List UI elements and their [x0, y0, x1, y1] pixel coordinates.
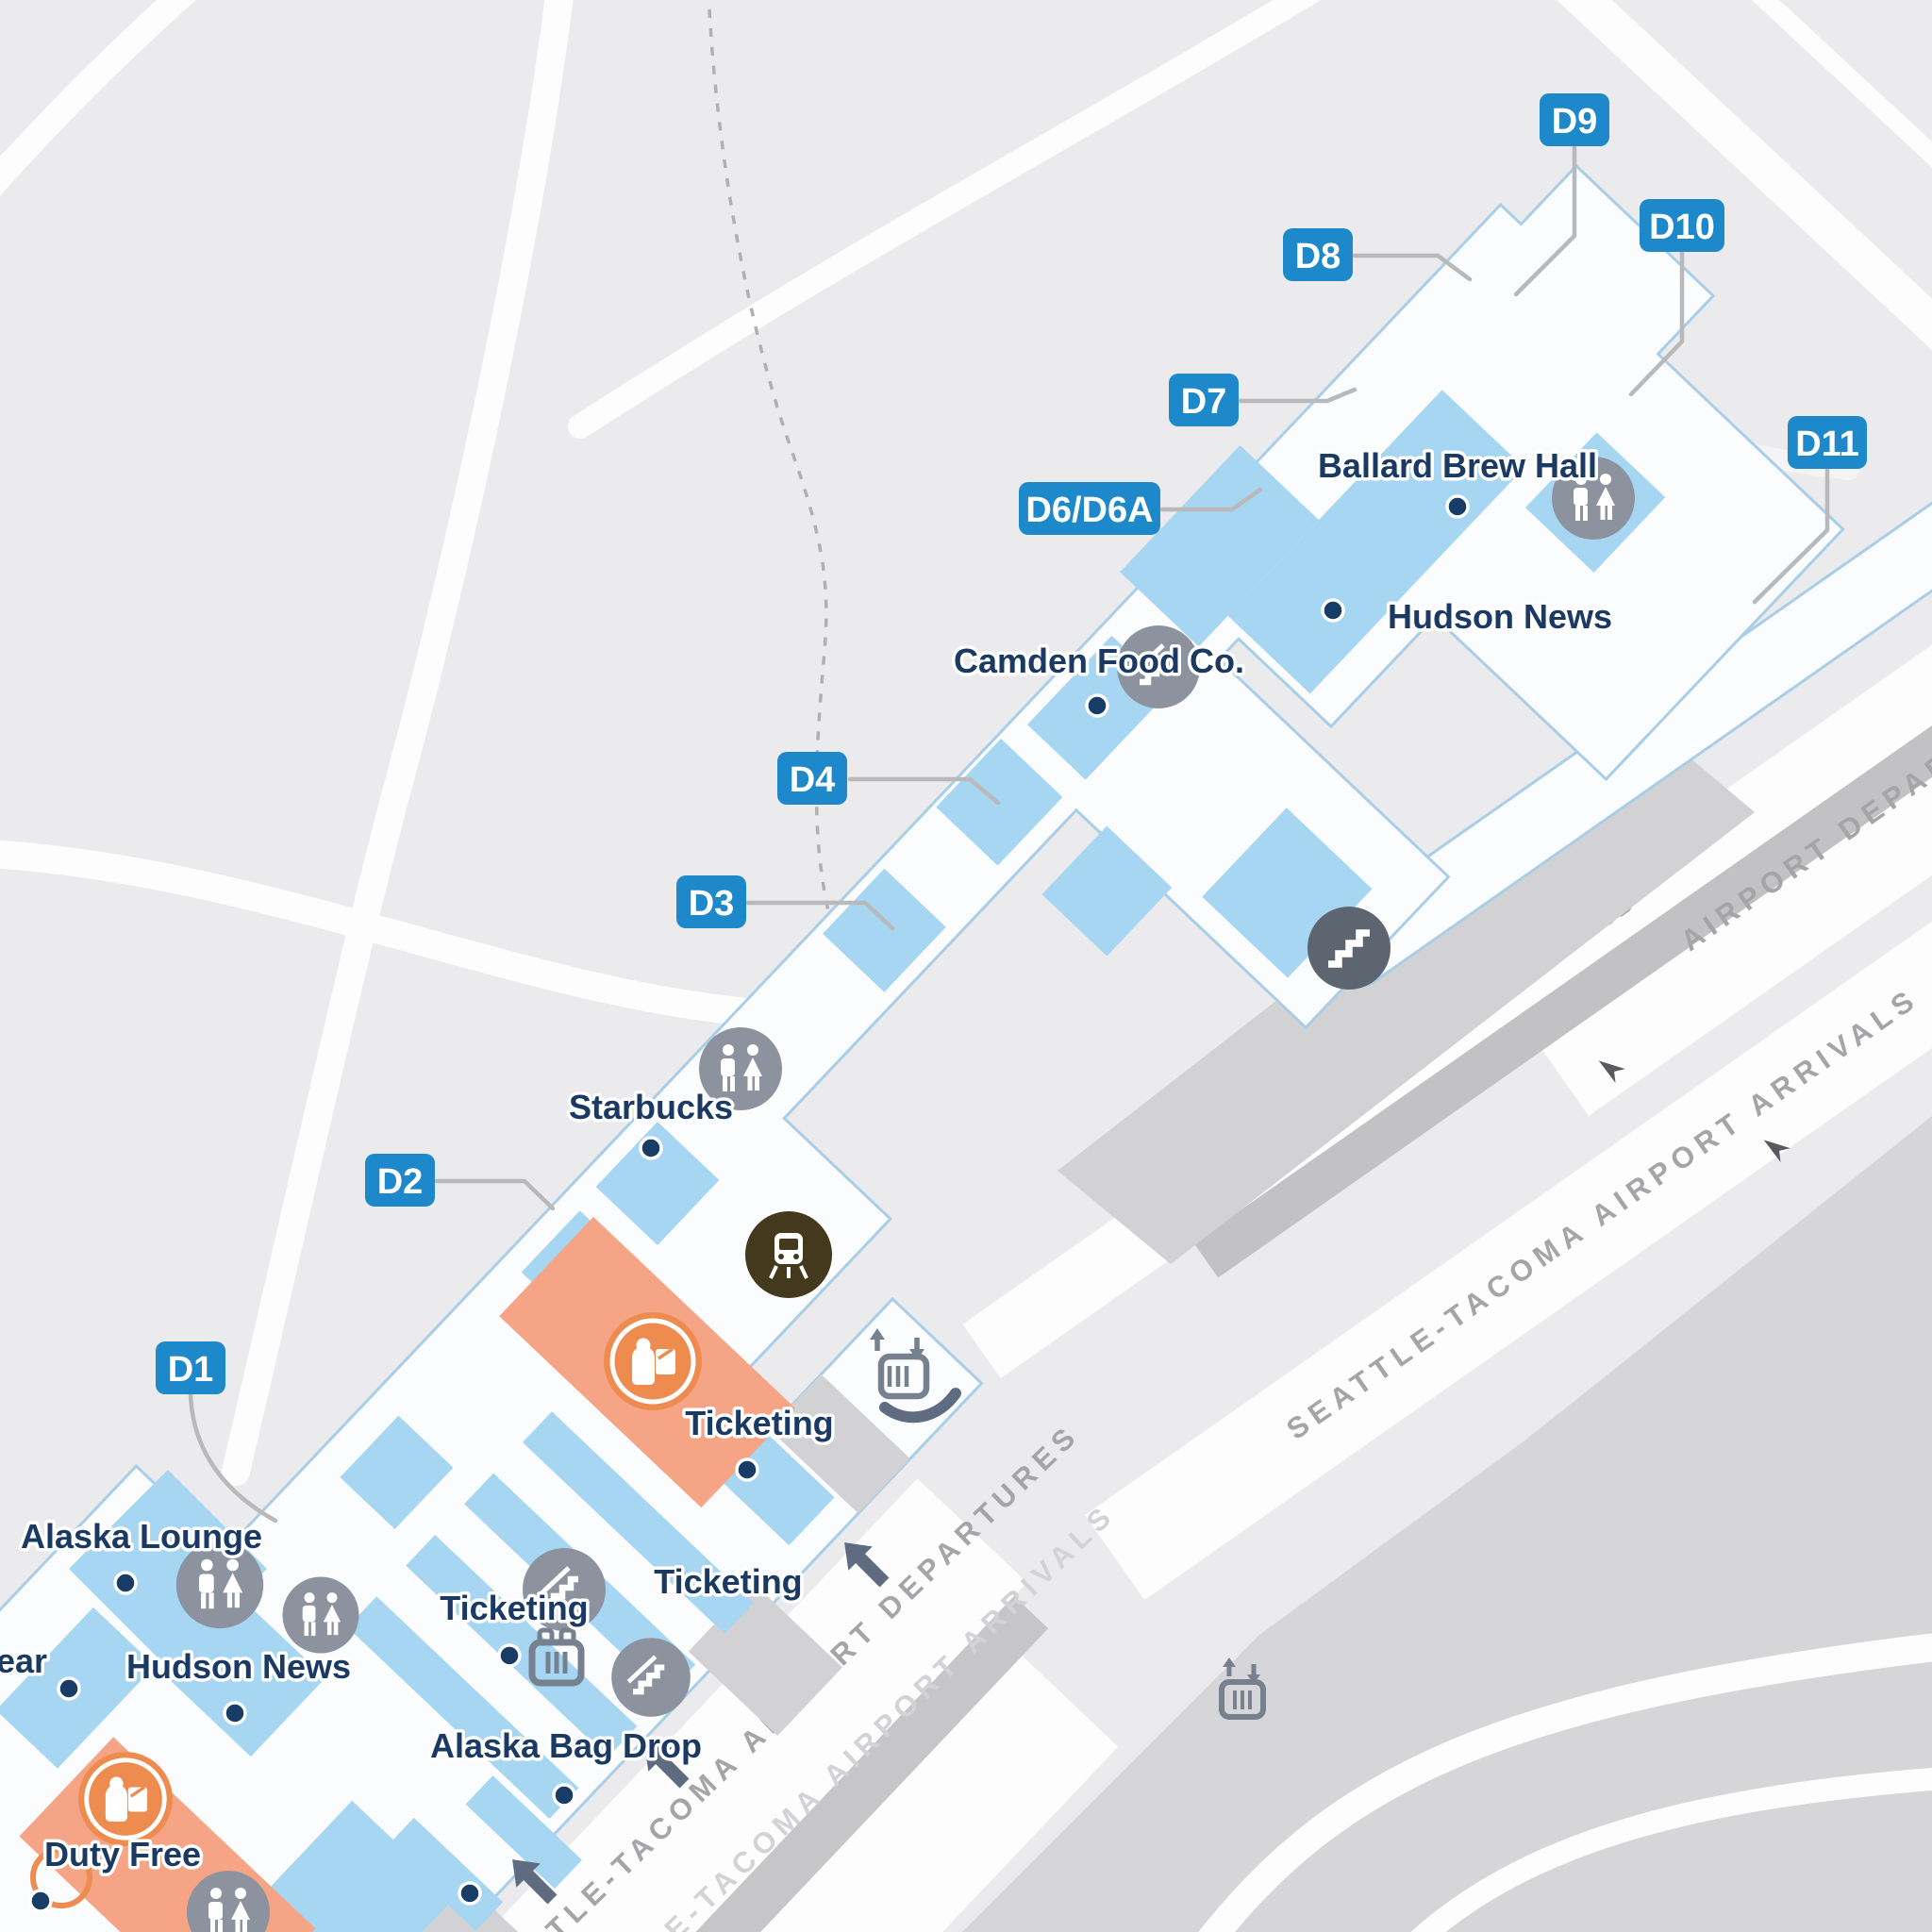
poi-dot-alaska-lounge[interactable] [115, 1573, 136, 1593]
label-camden-food-co: Camden Food Co. [954, 641, 1244, 680]
poi-dot-duty-free[interactable] [30, 1890, 51, 1911]
security-checkpoint-icon[interactable] [78, 1752, 173, 1846]
gate-chip-d4-label: D4 [790, 760, 836, 800]
escalator-icon[interactable] [611, 1638, 691, 1717]
poi-dot-camden-food-co[interactable] [1087, 695, 1108, 716]
label-starbucks: Starbucks [569, 1088, 733, 1126]
poi-dot-starbucks[interactable] [641, 1138, 661, 1158]
gate-chip-d1[interactable]: D1 [156, 1341, 225, 1394]
gate-chip-d1-label: D1 [168, 1350, 214, 1390]
poi-dot-ticketing-1[interactable] [737, 1459, 758, 1480]
gate-chip-d3-label: D3 [689, 884, 735, 924]
poi-dot-hudson-news-north[interactable] [1323, 600, 1343, 621]
security-checkpoint-icon[interactable] [604, 1312, 702, 1410]
label-ballard-brew-hall: Ballard Brew Hall [1318, 446, 1597, 485]
label-duty-free: Duty Free [44, 1835, 201, 1874]
label-ticketing-1: Ticketing [685, 1404, 833, 1442]
poi-dot-counter[interactable] [459, 1883, 480, 1904]
label-alaska-lounge: Alaska Lounge [21, 1517, 262, 1556]
restroom-icon[interactable] [283, 1577, 359, 1654]
gate-chip-d3[interactable]: D3 [676, 875, 746, 928]
gate-chip-d7-label: D7 [1181, 382, 1227, 422]
gate-chip-d4[interactable]: D4 [777, 752, 847, 805]
light-rail-train-icon[interactable] [745, 1211, 832, 1298]
label-alaska-bag-drop: Alaska Bag Drop [430, 1726, 702, 1765]
label-hudson-news-north: Hudson News [1388, 597, 1612, 636]
poi-dot-gear[interactable] [58, 1678, 79, 1699]
gate-chip-d10-label: D10 [1649, 208, 1715, 247]
label-ticketing-2: Ticketing [654, 1562, 802, 1601]
poi-dot-alaska-bag-drop[interactable] [554, 1785, 575, 1806]
label-ticketing-3: Ticketing [440, 1589, 588, 1627]
label-hudson-news-south: Hudson News [126, 1647, 351, 1686]
gate-chip-d2-label: D2 [377, 1162, 424, 1202]
gate-chip-d6-d6a-label: D6/D6A [1025, 491, 1153, 530]
gate-chip-d9-label: D9 [1552, 102, 1598, 142]
stairs-icon[interactable] [1307, 907, 1391, 990]
label-gear-partial: ear [0, 1641, 47, 1680]
poi-dot-hudson-news-south[interactable] [225, 1703, 245, 1724]
gate-chip-d11[interactable]: D11 [1788, 416, 1867, 469]
gate-chip-d11-label: D11 [1795, 425, 1859, 464]
poi-dot-ballard-brew-hall[interactable] [1447, 496, 1468, 517]
gate-chip-d10[interactable]: D10 [1640, 199, 1724, 252]
gate-chip-d7[interactable]: D7 [1169, 374, 1239, 426]
gate-chip-d8-label: D8 [1295, 237, 1341, 276]
poi-dot-ticketing-3[interactable] [499, 1645, 520, 1666]
gate-chip-d2[interactable]: D2 [365, 1154, 435, 1207]
airport-map: AIR CARGO ROAD SEATTLE-TACOMA AIRPORT AR… [0, 0, 1932, 1932]
gate-chip-d6-d6a[interactable]: D6/D6A [1019, 482, 1160, 535]
gate-chip-d9[interactable]: D9 [1540, 93, 1609, 146]
gate-chip-d8[interactable]: D8 [1283, 228, 1353, 281]
